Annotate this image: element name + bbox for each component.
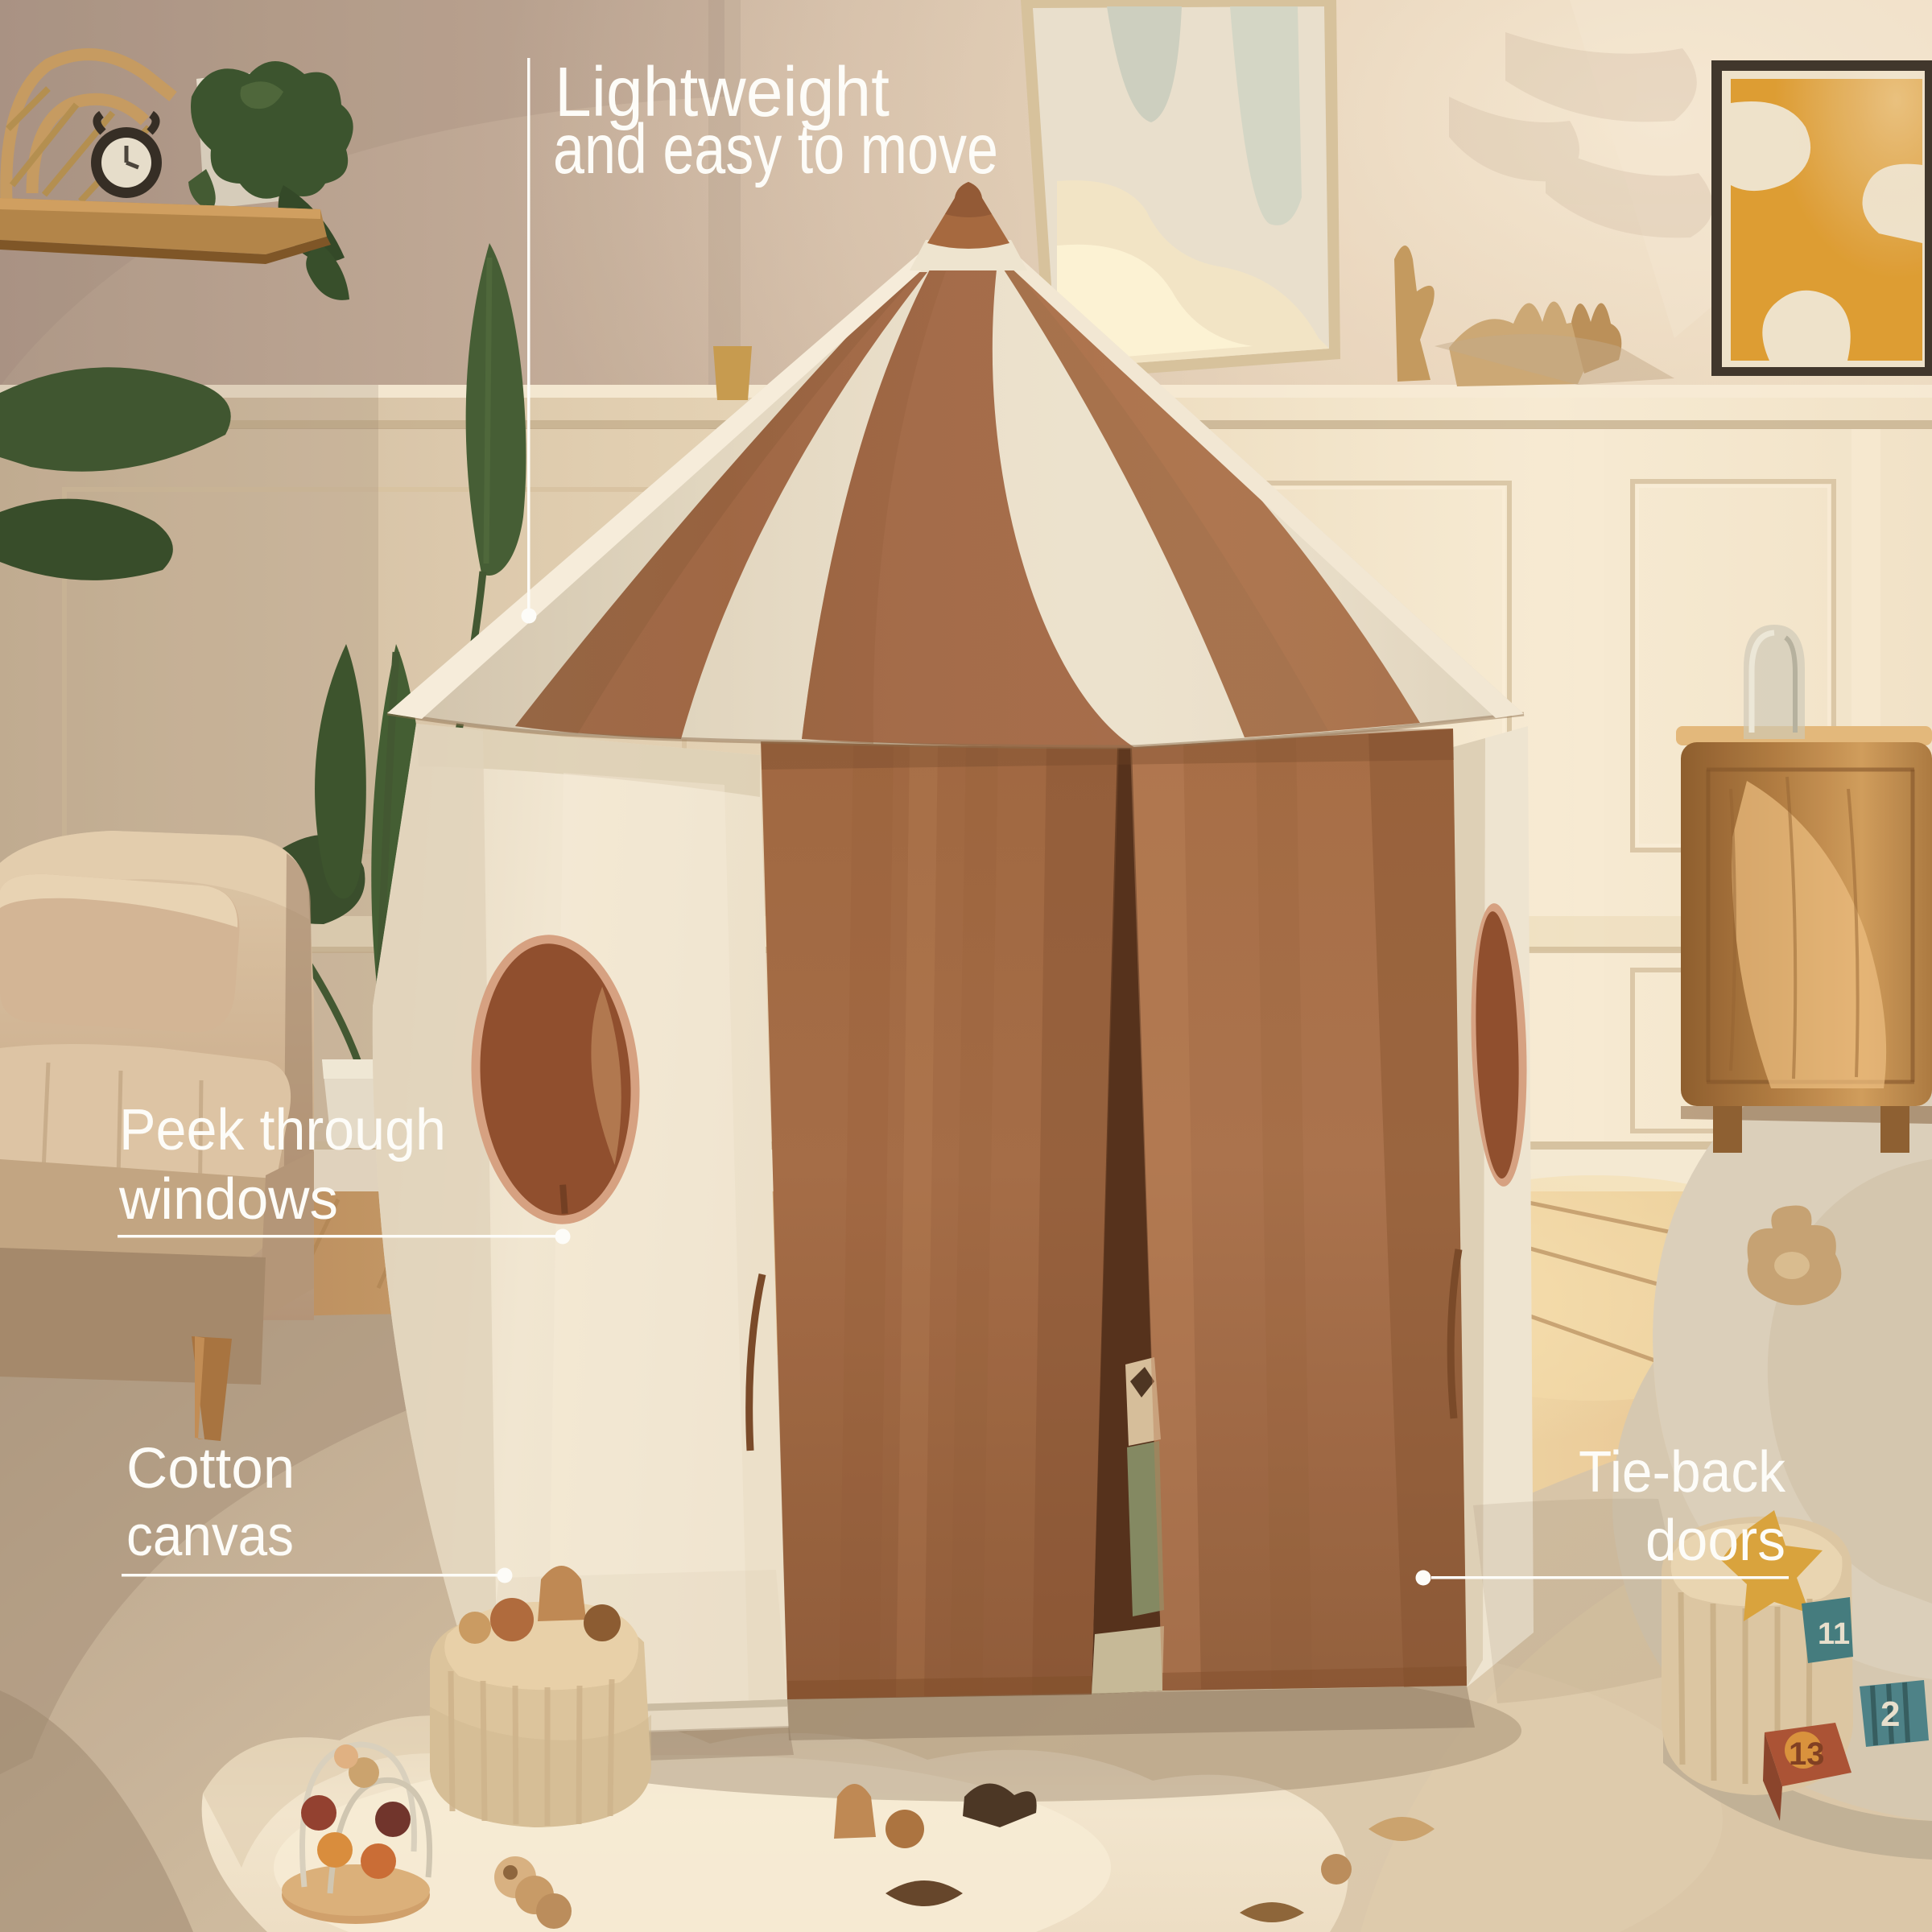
svg-text:doors: doors xyxy=(1645,1509,1785,1573)
svg-text:windows: windows xyxy=(118,1167,338,1232)
svg-text:and easy to move: and easy to move xyxy=(553,110,998,188)
svg-text:canvas: canvas xyxy=(126,1505,294,1568)
svg-text:Peek through: Peek through xyxy=(119,1098,446,1162)
svg-text:Tie-back: Tie-back xyxy=(1579,1440,1786,1505)
svg-text:Cotton: Cotton xyxy=(126,1437,295,1501)
